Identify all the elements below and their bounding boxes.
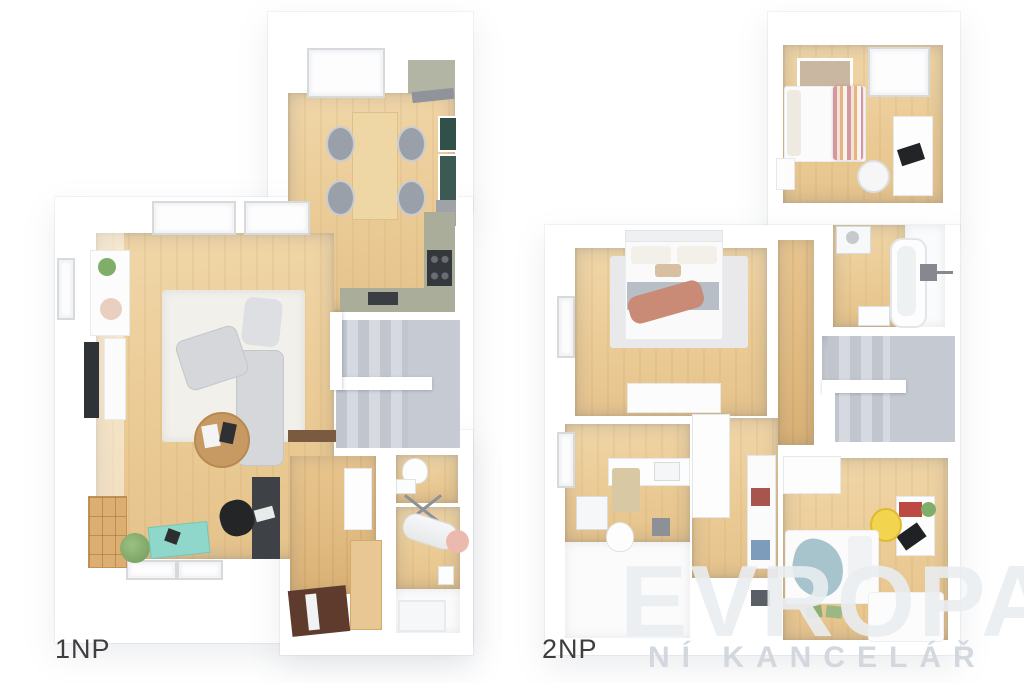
bedroom3-closet <box>783 456 841 494</box>
floor2-label: 2NP <box>542 634 598 665</box>
bedroom2-accent-pillow <box>655 264 681 277</box>
bedroom1-pillow <box>787 90 801 156</box>
bedroom2-pillow-2 <box>677 246 717 264</box>
bathroom2-shower-control <box>652 518 670 536</box>
bedroom3-plant-pot-1 <box>805 605 823 619</box>
shelf-box-dark <box>751 590 770 606</box>
bathroom2-radiator <box>576 496 608 530</box>
bedroom1-striped-blanket <box>833 86 863 160</box>
bathroom2-window <box>557 432 575 488</box>
bedroom3-red-book <box>899 502 922 517</box>
bathroom-sink <box>858 306 890 326</box>
staircase2-side-railing <box>822 380 835 442</box>
bedroom3-plant-pot-2 <box>825 605 842 619</box>
bedroom1-chair <box>857 160 890 193</box>
bathroom2-mat <box>612 468 640 512</box>
bedroom2-pillow-1 <box>631 246 671 264</box>
scene <box>0 0 1024 683</box>
bedroom2-dresser <box>627 383 721 413</box>
bathtub-inner <box>897 246 916 316</box>
bedroom2-window <box>557 296 575 358</box>
bedroom1-nightstand <box>776 158 795 190</box>
bedroom2-headboard <box>625 230 723 242</box>
bedroom3-white-bed <box>868 592 944 642</box>
bedroom1-skylight-window <box>868 47 930 97</box>
bathroom2-floor-white <box>565 542 690 638</box>
shower-arm <box>936 271 953 274</box>
shelf-box-red <box>751 488 770 506</box>
floor1-label: 1NP <box>55 634 111 665</box>
floorplan-canvas: 1NP 2NP EVROPA NÍ KANCELÁŘ <box>0 0 1024 683</box>
bedroom3-plant <box>921 502 936 517</box>
floorplan-2np <box>0 0 1024 683</box>
bathroom2-toilet <box>606 522 634 552</box>
bedroom3-pillow <box>848 536 872 580</box>
shower-head <box>920 264 937 281</box>
washer-door <box>846 231 859 244</box>
bathroom2-basin <box>654 462 680 481</box>
hall2-wardrobe <box>692 414 730 518</box>
upper-hall-floor <box>778 240 814 445</box>
shelf-box-blue <box>751 540 770 560</box>
